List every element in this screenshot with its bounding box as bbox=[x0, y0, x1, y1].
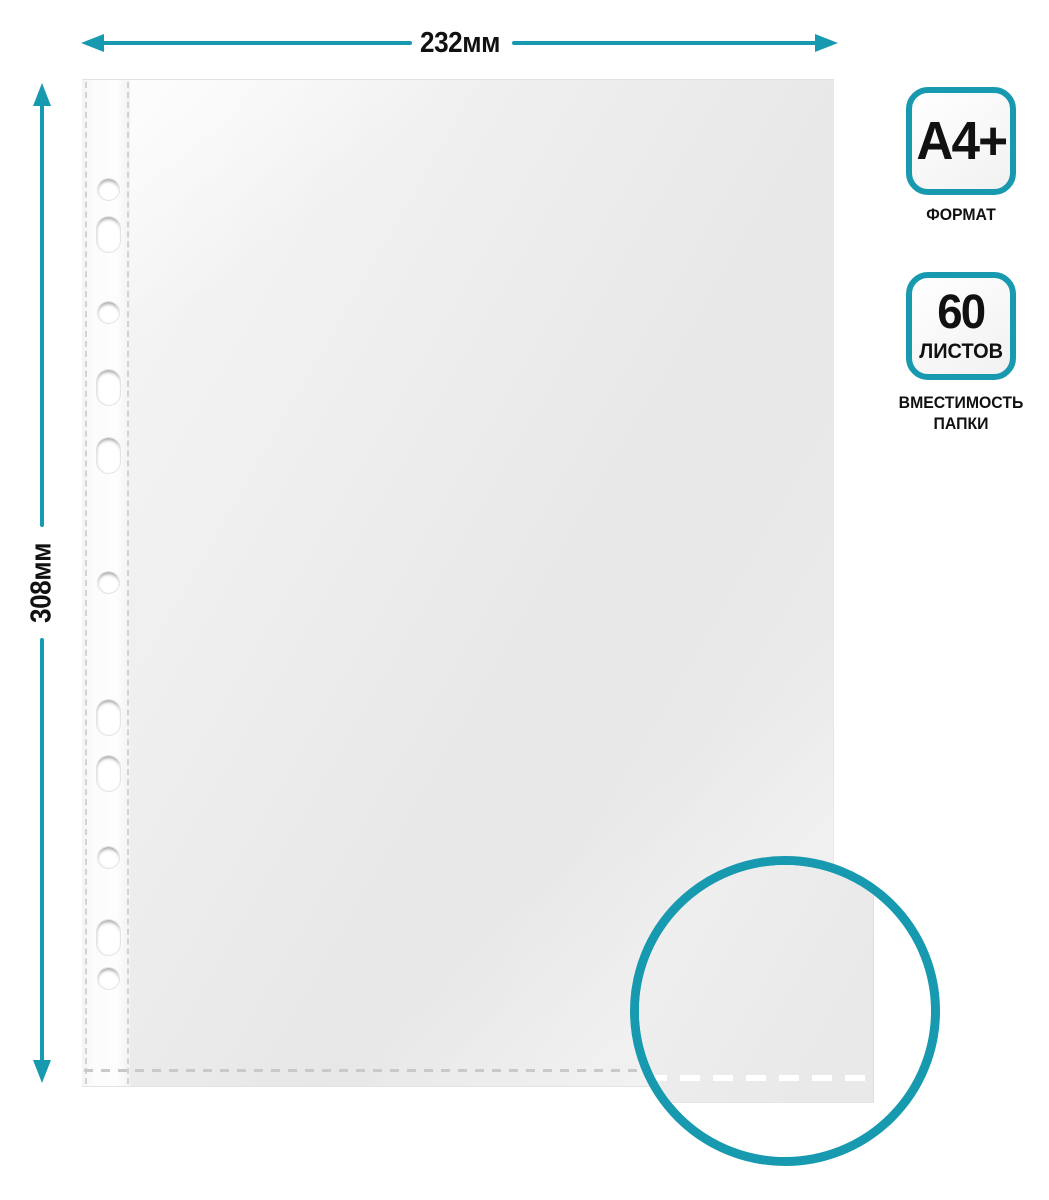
format-badge: A4+ bbox=[906, 87, 1016, 195]
punch-hole-round bbox=[97, 967, 120, 990]
punch-hole-oval bbox=[96, 216, 121, 253]
dimension-line-left bbox=[97, 41, 412, 45]
punch-hole-oval bbox=[96, 755, 121, 792]
zoom-circle bbox=[630, 856, 940, 1166]
magnified-corner bbox=[630, 856, 874, 1103]
dimension-line-top bbox=[40, 100, 44, 527]
capacity-caption: ВМЕСТИМОСТЬ ПАПКИ bbox=[882, 393, 1040, 434]
capacity-caption-line1: ВМЕСТИМОСТЬ bbox=[882, 393, 1040, 414]
stitch-line-left bbox=[85, 82, 87, 1084]
capacity-caption-line2: ПАПКИ bbox=[882, 414, 1040, 435]
punch-hole-oval bbox=[96, 919, 121, 956]
punch-hole-round bbox=[97, 178, 120, 201]
punch-hole-oval bbox=[96, 699, 121, 736]
punch-hole-oval bbox=[96, 369, 121, 406]
arrow-right-icon bbox=[815, 34, 838, 52]
arrow-down-icon bbox=[33, 1060, 51, 1083]
height-dimension-arrow: 308мм bbox=[30, 83, 54, 1083]
dimension-line-right bbox=[512, 41, 822, 45]
capacity-value: 60 bbox=[938, 289, 985, 337]
punch-hole-round bbox=[97, 571, 120, 594]
binding-strip bbox=[82, 80, 130, 1086]
format-value: A4+ bbox=[916, 114, 1006, 168]
capacity-badge: 60 ЛИСТОВ bbox=[906, 272, 1016, 380]
punch-hole-round bbox=[97, 846, 120, 869]
punch-hole-oval bbox=[96, 437, 121, 474]
product-image: 232мм 308мм A4+ ФОРМАТ 60 ЛИСТОВ В bbox=[0, 0, 1049, 1200]
dimension-line-bottom bbox=[40, 638, 44, 1066]
width-dimension-label: 232мм bbox=[420, 29, 500, 57]
punch-hole-round bbox=[97, 301, 120, 324]
width-dimension-arrow: 232мм bbox=[81, 29, 838, 57]
stitch-line-right bbox=[127, 82, 129, 1084]
height-dimension-label: 308мм bbox=[26, 543, 59, 623]
magnified-weld-seam bbox=[630, 1075, 869, 1081]
format-caption: ФОРМАТ bbox=[901, 205, 1022, 226]
capacity-unit: ЛИСТОВ bbox=[919, 340, 1003, 364]
